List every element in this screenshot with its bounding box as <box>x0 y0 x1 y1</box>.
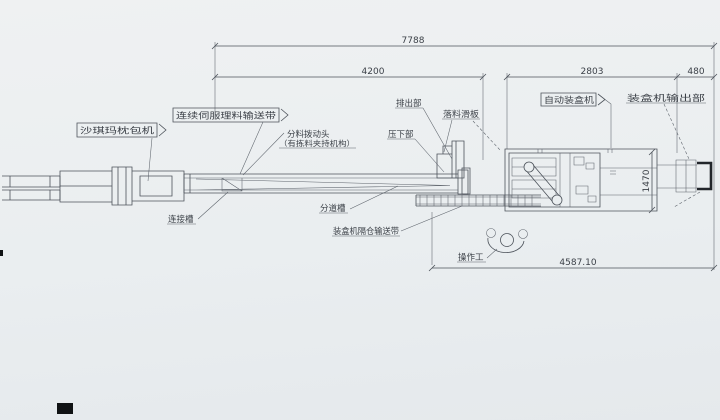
leader <box>148 138 152 181</box>
diagonal-chute <box>524 162 562 205</box>
servo-arranging-conveyor <box>184 170 468 194</box>
servo-conveyor-label: 连续伺服理料输送带 <box>176 111 277 122</box>
label-discharge: 排出部 <box>395 98 452 159</box>
leader <box>401 206 462 231</box>
label-pillow-packer: 沙琪玛枕包机 <box>77 123 166 181</box>
dimension-line-set <box>215 46 714 268</box>
compartment-ladder-conveyor <box>416 195 541 206</box>
divider-head-note: （有拣料夹持机构） <box>279 138 355 148</box>
compartment-conveyor-label: 装盒机隔仓输送带 <box>333 226 399 237</box>
dim-cartoner-width: 1470 <box>642 169 652 192</box>
dim-conveyor-length: 4200 <box>362 67 385 77</box>
dim-line-length: 4587.10 <box>559 258 596 268</box>
press-down-label: 压下部 <box>388 129 414 140</box>
operator-left-arm <box>487 229 496 238</box>
dim-output-length: 480 <box>687 67 704 77</box>
leader <box>350 186 398 209</box>
label-operator: 操作工 <box>457 249 497 263</box>
label-divider-head: 分料拨动头 （有拣料夹持机构） <box>243 129 356 175</box>
label-compartment-conveyor: 装盒机隔仓输送带 <box>332 206 462 237</box>
label-drop-slide: 落料滑板 <box>442 109 500 152</box>
divide-chute-label: 分道槽 <box>320 203 346 214</box>
ladder-rungs <box>420 195 532 206</box>
label-auto-cartoner: 自动装盒机 <box>541 93 611 148</box>
leader <box>444 120 452 152</box>
output-bracket <box>697 163 711 189</box>
leader <box>198 192 228 219</box>
scanned-layout-drawing: 7788 4200 2803 480 1470 4587.10 <box>0 0 720 420</box>
leader <box>487 249 497 258</box>
label-press-down: 压下部 <box>387 129 444 172</box>
cartoner-output-label: 装盒机输出部 <box>627 93 706 104</box>
dim-total-length: 7788 <box>402 36 425 46</box>
drop-slide-label: 落料滑板 <box>443 109 480 120</box>
pillow-packer-machine <box>60 167 184 205</box>
operator-torso <box>488 238 524 253</box>
leader <box>243 133 284 175</box>
auto-cartoner-label: 自动装盒机 <box>544 95 595 106</box>
leader-dashed <box>664 104 689 159</box>
scan-speck <box>0 250 3 256</box>
blueprint-canvas: 7788 4200 2803 480 1470 4587.10 <box>0 0 720 420</box>
operator-figure <box>487 229 528 253</box>
dim-cartoner-length: 2803 <box>581 67 604 77</box>
leader <box>605 100 611 149</box>
operator-right-arm <box>519 230 528 239</box>
dimension-lines: 7788 4200 2803 480 1470 4587.10 <box>212 36 717 271</box>
connect-chute-label: 连接槽 <box>168 214 194 225</box>
discharge-label: 排出部 <box>396 98 422 109</box>
pillow-packer-label: 沙琪玛枕包机 <box>80 126 155 137</box>
label-servo-conveyor: 连续伺服理料输送带 <box>173 108 288 174</box>
operator-head <box>501 234 514 247</box>
left-outfeed-conveyor <box>2 176 60 200</box>
scan-blot <box>57 403 73 414</box>
scan-artifacts <box>0 250 73 414</box>
extension-lines <box>215 42 714 270</box>
auto-cartoner-machine <box>505 149 657 211</box>
label-connect-chute: 连接槽 <box>167 192 228 225</box>
operator-label: 操作工 <box>458 252 484 263</box>
leader-dashed <box>473 121 500 150</box>
discharge-press-unit <box>437 141 470 194</box>
cartoner-output-section <box>657 160 711 207</box>
leader <box>415 139 444 172</box>
